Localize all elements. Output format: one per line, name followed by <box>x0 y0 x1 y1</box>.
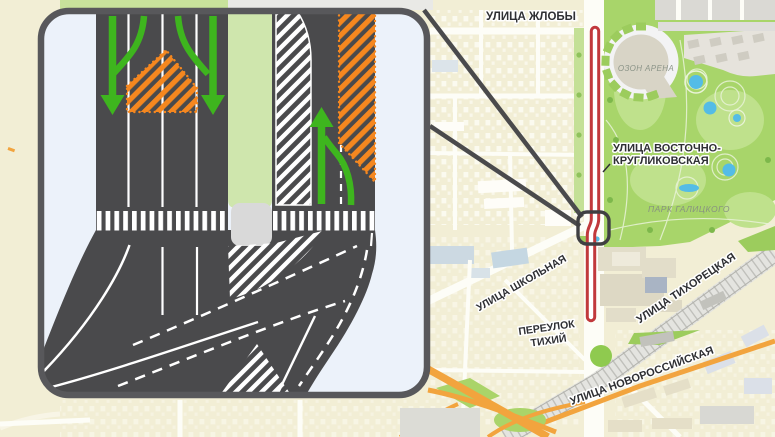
svg-text:УЛИЦА ЖЛОБЫ: УЛИЦА ЖЛОБЫ <box>486 11 576 23</box>
svg-text:КРУГЛИКОВСКАЯ: КРУГЛИКОВСКАЯ <box>613 155 709 167</box>
svg-text:ОЗОН АРЕНА: ОЗОН АРЕНА <box>618 64 674 73</box>
svg-text:ПАРК ГАЛИЦКОГО: ПАРК ГАЛИЦКОГО <box>648 204 730 214</box>
svg-text:УЛИЦА ВОСТОЧНО-: УЛИЦА ВОСТОЧНО- <box>613 143 721 155</box>
